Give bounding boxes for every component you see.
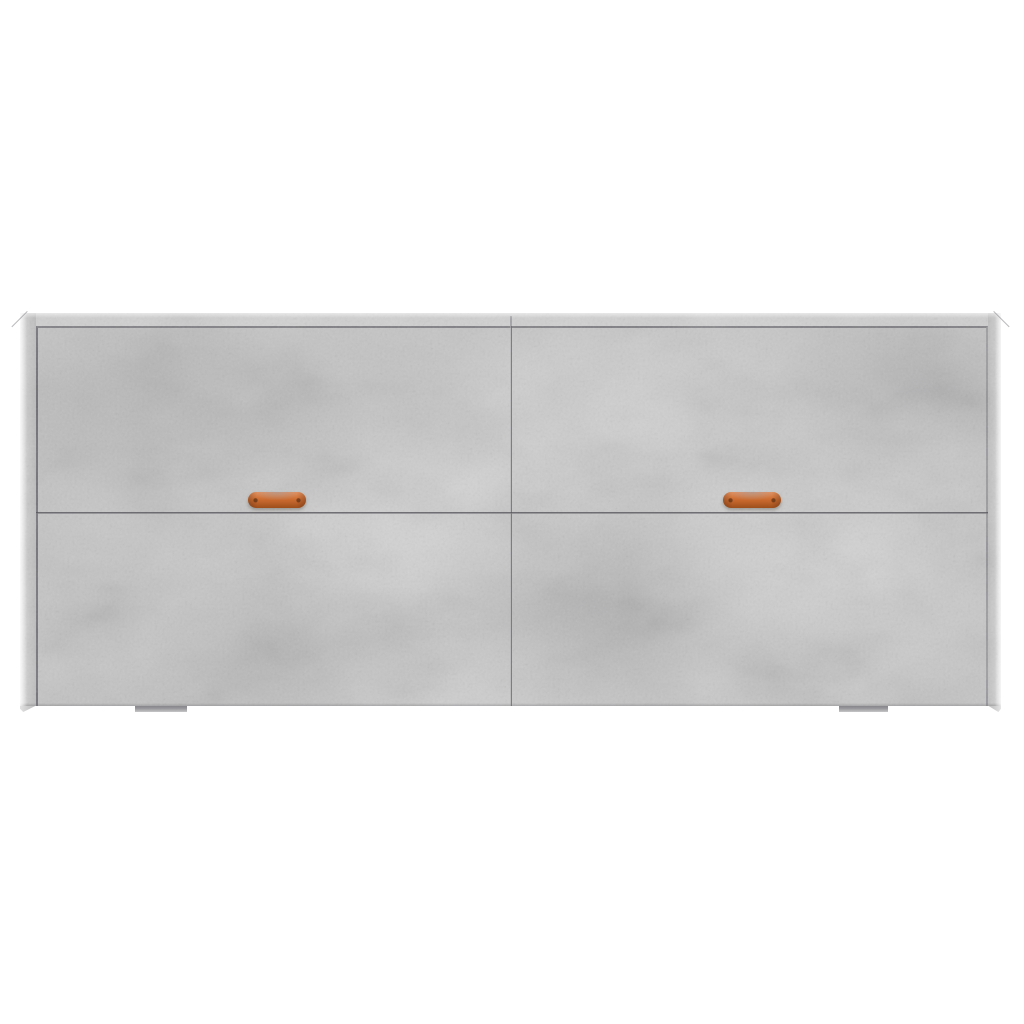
side-panel-left [20,313,36,712]
image-description: Front view of a wide concrete-grey sideb… [0,0,1,1]
product-photo: Front view of a wide concrete-grey sideb… [0,0,1024,1024]
side-panel-right [988,313,1001,712]
door-panels [36,326,988,706]
top-panel-seam [510,316,512,326]
concrete-mottling [38,328,986,706]
horizontal-door-seam [36,512,988,514]
sideboard-cabinet [20,313,1001,706]
handle-left [248,492,306,508]
handle-right [723,492,781,508]
foot-left [135,706,187,712]
foot-right [839,706,888,712]
vertical-door-seam [510,326,512,706]
